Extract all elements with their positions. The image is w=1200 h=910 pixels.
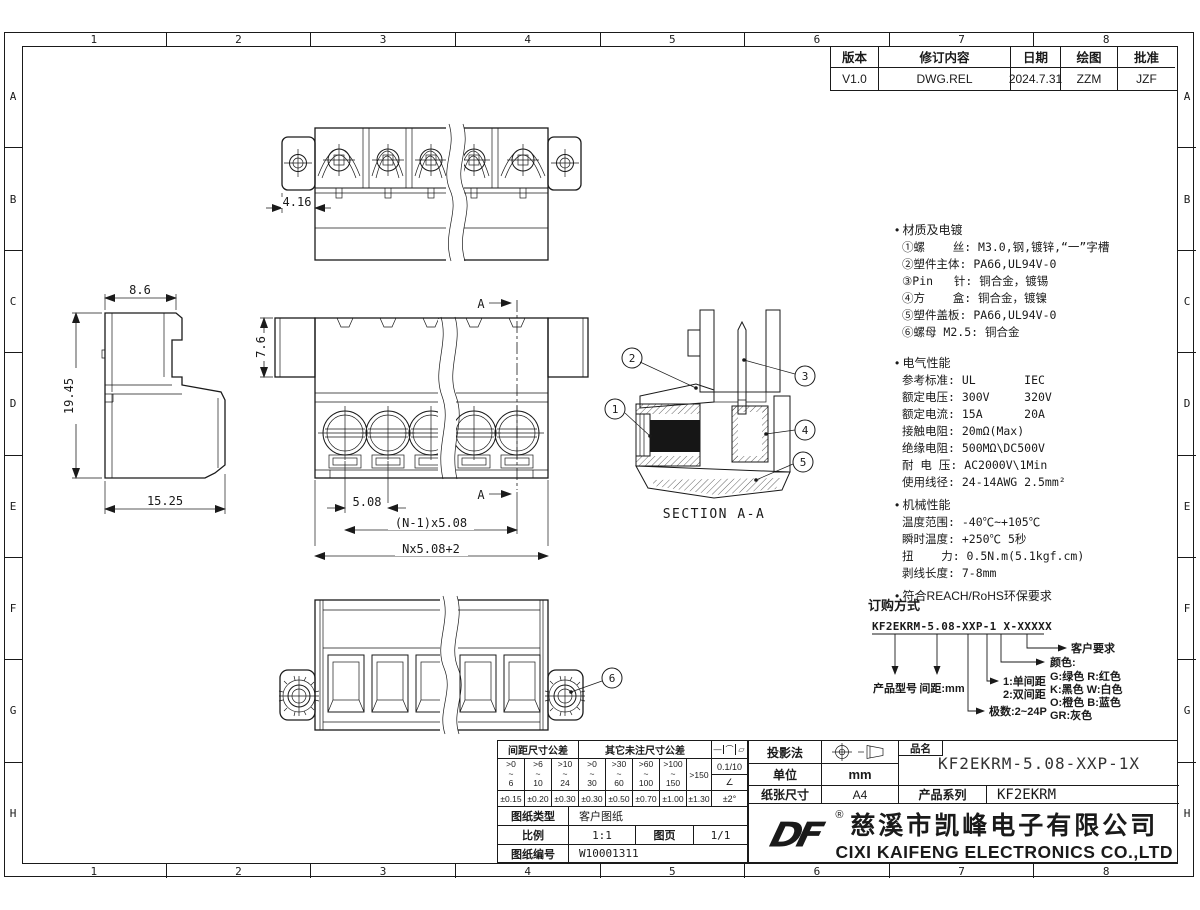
note-line: ③Pin 针: 铜合金，镀锡: [895, 273, 1185, 290]
tol-symbols: —⌒▱: [712, 741, 748, 759]
row-label: C: [4, 251, 22, 353]
knurled-nut-right: [545, 676, 585, 716]
section-view: 1 2 3 4 5 SECTION A-A: [592, 296, 884, 528]
col-label: 5: [601, 864, 746, 878]
tol-range: >6 ~ 10: [525, 759, 552, 791]
col-label: 5: [601, 32, 746, 46]
single-spacing-label: 1:单间距: [1003, 674, 1046, 688]
tol-value: ±1.30: [687, 791, 712, 807]
break-lines: [440, 596, 461, 734]
note-line: 剥线长度: 7-8mm: [895, 565, 1185, 582]
dim-front-depth: 7.6: [254, 318, 273, 377]
note-line: ④方 盒: 铜合金，镀镍: [895, 290, 1185, 307]
rev-version: V1.0: [831, 68, 879, 90]
mounting-hole-left: [284, 149, 312, 177]
paper-value: A4: [822, 786, 899, 804]
callout-4: 4: [802, 424, 809, 437]
rev-header: 修订内容: [879, 46, 1011, 68]
dim-19.45: 19.45: [62, 378, 76, 414]
color-option: G:绿色 R:红色: [1050, 669, 1121, 683]
ordering-diagram: 订购方式 KF2EKRM-5.08-XXP-1 X-XXXXX 产品型号 间距:…: [858, 596, 1192, 748]
note-line: 温度范围: -40℃~+105℃: [895, 514, 1185, 531]
mechanical-notes: 机械性能 温度范围: -40℃~+105℃ 瞬时温度: +250℃ 5秒 扭 力…: [895, 497, 1185, 582]
double-spacing-label: 2:双间距: [1003, 688, 1046, 701]
col-label: 3: [311, 32, 456, 46]
tol-value: ±1.00: [660, 791, 687, 807]
note-line: 扭 力: 0.5N.m(5.1kgf.cm): [895, 548, 1185, 565]
row-label: A: [4, 46, 22, 148]
drawing-sheet: 1 2 3 4 5 6 7 8 1 2 3 4 5 6 7 8 A B C D …: [0, 0, 1200, 910]
col-label: 2: [167, 32, 312, 46]
revision-header-row: 版本 修订内容 日期 绘图 批准: [831, 46, 1178, 68]
col-label: 7: [890, 864, 1035, 878]
sheet-label: 图页: [636, 826, 694, 845]
tol-range: >30 ~ 60: [606, 759, 633, 791]
electrical-notes: 电气性能 参考标准: UL IEC 额定电压: 300V 320V 额定电流: …: [895, 355, 1185, 491]
customer-label: 客户要求: [1070, 641, 1116, 655]
front-view: A A 7.6 5.08 (N-1)x5.08 Nx5.08+2: [252, 284, 597, 584]
dim-flange-offset: 4.16: [266, 193, 331, 213]
series-label: 产品系列: [899, 786, 987, 804]
model-label: 产品型号: [873, 681, 917, 695]
dim-5.08: 5.08: [353, 495, 382, 509]
frame-band-left: A B C D E F G H: [4, 46, 22, 864]
col-label: 1: [22, 864, 167, 878]
col-label: 1: [22, 32, 167, 46]
tol-range: >0 ~ 6: [498, 759, 525, 791]
side-view-outline: [102, 313, 225, 478]
dim-4.16: 4.16: [283, 195, 312, 209]
color-option: O:橙色 B:蓝色: [1050, 695, 1121, 709]
angle-tol: ±2°: [712, 791, 748, 807]
break-lines: [446, 124, 467, 263]
col-label: 7: [890, 32, 1035, 46]
break-lines: [438, 317, 459, 479]
dim-span: (N-1)x5.08: [395, 516, 467, 530]
callout-3: 3: [802, 370, 809, 383]
callout-2: 2: [629, 352, 636, 365]
note-line: 参考标准: UL IEC: [895, 372, 1185, 389]
rev-approver: JZF: [1118, 68, 1175, 90]
title-block: 间距尺寸公差 其它未注尺寸公差 —⌒▱ >0 ~ 6±0.15 >6 ~ 10±…: [497, 740, 1178, 863]
front-view-screws: [318, 406, 544, 468]
section-cut-line: A A: [477, 297, 517, 502]
callout-6: 6: [609, 672, 616, 685]
row-label: F: [4, 558, 22, 660]
col-label: 8: [1034, 864, 1178, 878]
tol-range: >10 ~ 24: [552, 759, 579, 791]
row-label: H: [4, 763, 22, 864]
company-name-en: CIXI KAIFENG ELECTRONICS CO.,LTD: [836, 842, 1174, 863]
note-line: ⑤塑件盖板: PA66,UL94V-0: [895, 307, 1185, 324]
third-angle-projection-icon: [831, 743, 889, 761]
title-block-right: 投影法 单位 mm: [748, 741, 1179, 862]
tol-value: ±0.30: [552, 791, 579, 807]
note-line: 瞬时温度: +250℃ 5秒: [895, 531, 1185, 548]
col-label: 6: [745, 864, 890, 878]
rev-drawer: ZZM: [1061, 68, 1118, 90]
tol-value: ±0.20: [525, 791, 552, 807]
section-mark-top: A: [477, 297, 485, 311]
note-line: 额定电压: 300V 320V: [895, 389, 1185, 406]
tol-other-header: 其它未注尺寸公差: [579, 741, 712, 759]
color-label: 颜色:: [1050, 655, 1076, 669]
scale-value: 1:1: [569, 826, 636, 845]
projection-label: 投影法: [749, 741, 822, 764]
top-view: 4.16: [250, 112, 600, 282]
company-name-cn: 慈溪市凯峰电子有限公司: [836, 806, 1174, 842]
rev-content: DWG.REL: [879, 68, 1011, 90]
callout-5: 5: [800, 456, 807, 469]
registered-mark: ®: [835, 809, 843, 821]
unit-label: 单位: [749, 764, 822, 786]
tol-value: ±0.30: [579, 791, 606, 807]
note-line: 绝缘电阻: 500MΩ\DC500V: [895, 440, 1185, 457]
product-name: KF2EKRM-5.08-XXP-1X: [938, 754, 1140, 773]
col-label: 3: [311, 864, 456, 878]
note-line: 使用线径: 24-14AWG 2.5mm²: [895, 474, 1185, 491]
note-line: ①螺 丝: M3.0,钢,镀锌,“一”字槽: [895, 239, 1185, 256]
ordering-title: 订购方式: [868, 598, 920, 613]
knurled-nut-left: [279, 676, 319, 716]
dim-side-bottom-width: 15.25: [105, 474, 225, 514]
frame-band-top: 1 2 3 4 5 6 7 8: [22, 32, 1178, 46]
row-label: G: [4, 660, 22, 762]
color-option: K:黑色 W:白色: [1050, 682, 1123, 696]
tol-pitch-header: 间距尺寸公差: [498, 741, 579, 759]
tol-range: >60 ~ 100: [633, 759, 660, 791]
rev-header: 日期: [1011, 46, 1061, 68]
scale-label: 比例: [498, 826, 569, 845]
section-body: [636, 310, 790, 498]
note-line: ②塑件主体: PA66,UL94V-0: [895, 256, 1185, 273]
tolerance-table: 间距尺寸公差 其它未注尺寸公差 —⌒▱ >0 ~ 6±0.15 >6 ~ 10±…: [498, 741, 748, 862]
ordering-code: KF2EKRM-5.08-XXP-1 X-XXXXX: [872, 620, 1052, 633]
color-option: GR:灰色: [1050, 708, 1092, 722]
rev-header: 版本: [831, 46, 879, 68]
revision-value-row: V1.0 DWG.REL 2024.7.31 ZZM JZF: [831, 68, 1178, 90]
unit-value: mm: [822, 764, 899, 786]
material-title: 材质及电镀: [895, 222, 1185, 239]
col-label: 2: [167, 864, 312, 878]
note-line: ⑥螺母 M2.5: 铜合金: [895, 324, 1185, 341]
company-names: 慈溪市凯峰电子有限公司 CIXI KAIFENG ELECTRONICS CO.…: [836, 806, 1174, 863]
doc-type-value: 客户图纸: [569, 807, 748, 826]
dim-pitch: 5.08 (N-1)x5.08 Nx5.08+2: [315, 461, 548, 556]
top-view-outline: [282, 128, 581, 260]
name-label: 品名: [899, 741, 943, 756]
col-label: 8: [1034, 32, 1178, 46]
dim-7.6: 7.6: [254, 336, 268, 358]
mechanical-title: 机械性能: [895, 497, 1185, 514]
series-value: KF2EKRM: [987, 786, 1179, 804]
revision-table: 版本 修订内容 日期 绘图 批准 V1.0 DWG.REL 2024.7.31 …: [830, 46, 1178, 91]
tol-range: >0 ~ 30: [579, 759, 606, 791]
electrical-title: 电气性能: [895, 355, 1185, 372]
rev-header: 绘图: [1061, 46, 1118, 68]
tol-value: ±0.70: [633, 791, 660, 807]
top-view-screws: [323, 144, 539, 198]
note-line: 接触电阻: 20mΩ(Max): [895, 423, 1185, 440]
doc-type-label: 图纸类型: [498, 807, 569, 826]
wire-ports: [328, 655, 540, 712]
tol-range: >100 ~ 150: [660, 759, 687, 791]
side-view: 8.6 19.45 15.25: [58, 282, 273, 527]
note-line: 额定电流: 15A 20A: [895, 406, 1185, 423]
dim-side-top-width: 8.6: [105, 283, 176, 310]
flatness-icon: ▱: [736, 745, 747, 754]
dim-15.25: 15.25: [147, 494, 183, 508]
dim-total: Nx5.08+2: [402, 542, 460, 556]
tol-range: >150: [687, 759, 712, 791]
pitch-label: 间距:mm: [919, 682, 964, 695]
logo-dkf-icon: DF: [767, 815, 824, 855]
row-label: A: [1178, 46, 1196, 148]
callout-1: 1: [612, 403, 619, 416]
col-label: 4: [456, 864, 601, 878]
rev-date: 2024.7.31: [1011, 68, 1061, 90]
sheet-value: 1/1: [694, 826, 748, 845]
tol-value: ±0.50: [606, 791, 633, 807]
dim-side-height: 19.45: [62, 313, 102, 478]
section-title: SECTION A-A: [663, 507, 766, 522]
frame-band-bottom: 1 2 3 4 5 6 7 8: [22, 864, 1178, 878]
product-name-cell: 品名 KF2EKRM-5.08-XXP-1X: [899, 741, 1179, 786]
col-label: 4: [456, 32, 601, 46]
material-notes: 材质及电镀 ①螺 丝: M3.0,钢,镀锌,“一”字槽 ②塑件主体: PA66,…: [895, 222, 1185, 341]
section-mark-bottom: A: [477, 488, 485, 502]
flatness-tol: 0.1/10: [712, 759, 748, 775]
bottom-view: 6: [262, 582, 634, 750]
dim-8.6: 8.6: [129, 283, 151, 297]
projection-symbol: [822, 741, 899, 764]
row-label: D: [4, 353, 22, 455]
callout-6-group: 6: [569, 668, 622, 694]
poles-label: 极数:2~24P: [989, 704, 1047, 718]
front-view-outline: [275, 318, 588, 478]
angle-icon: ∠: [712, 775, 748, 791]
row-label: E: [4, 456, 22, 558]
row-label: B: [4, 148, 22, 250]
straightness-icon: —: [712, 745, 724, 754]
notes-column: 材质及电镀 ①螺 丝: M3.0,钢,镀锌,“一”字槽 ②塑件主体: PA66,…: [895, 222, 1185, 605]
note-line: 耐 电 压: AC2000V\1Min: [895, 457, 1185, 474]
tol-value: ±0.15: [498, 791, 525, 807]
paper-label: 纸张尺寸: [749, 786, 822, 804]
col-label: 6: [745, 32, 890, 46]
rev-header: 批准: [1118, 46, 1175, 68]
arc-icon: ⌒: [724, 744, 736, 755]
docno-value: W10001311: [569, 845, 748, 862]
company-logo: DF®: [755, 813, 836, 857]
docno-label: 图纸编号: [498, 845, 569, 862]
company-block: DF® 慈溪市凯峰电子有限公司 CIXI KAIFENG ELECTRONICS…: [749, 804, 1179, 865]
mounting-hole-right: [551, 149, 579, 177]
row-label: H: [1178, 763, 1196, 864]
